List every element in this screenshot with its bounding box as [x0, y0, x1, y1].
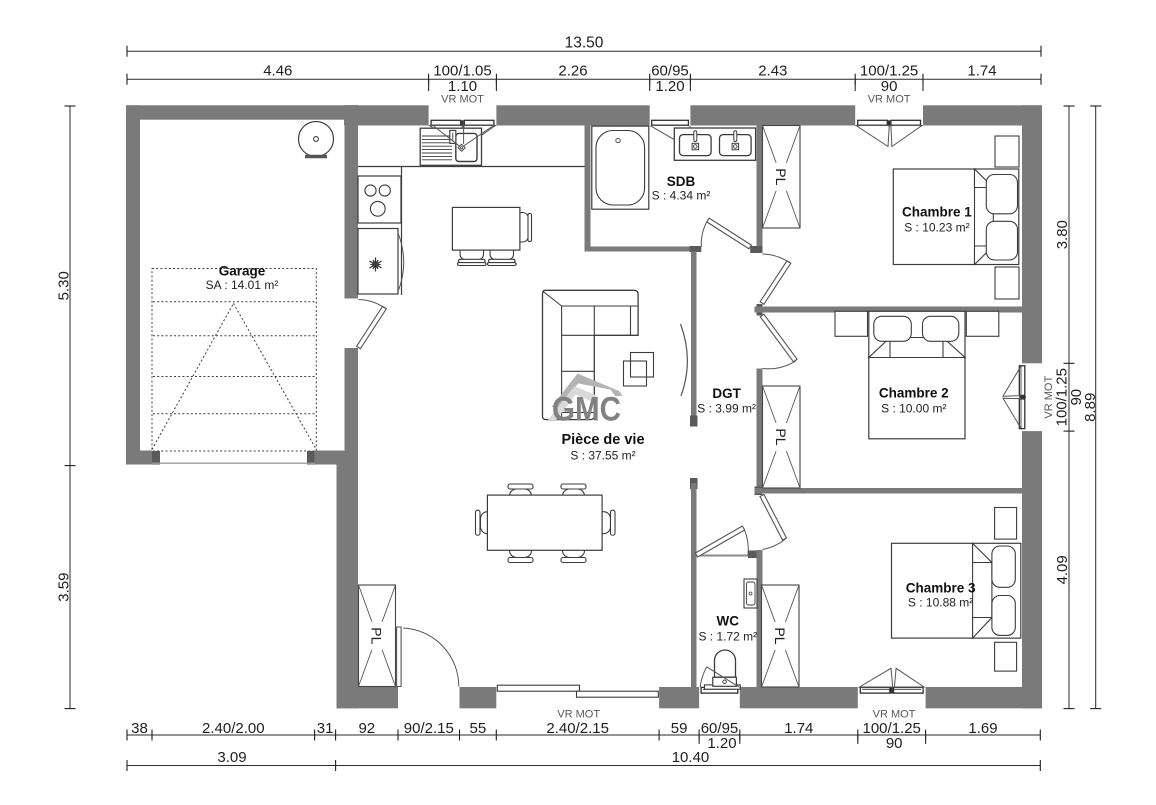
svg-text:55: 55 — [470, 720, 487, 737]
svg-text:PL: PL — [772, 627, 788, 644]
svg-text:VR MOT: VR MOT — [873, 709, 916, 721]
svg-text:1.74: 1.74 — [784, 720, 813, 737]
svg-text:4.09: 4.09 — [1054, 555, 1071, 584]
svg-text:SA : 14.01 m²: SA : 14.01 m² — [206, 278, 279, 292]
svg-text:3.59: 3.59 — [56, 572, 73, 601]
svg-text:90: 90 — [886, 735, 903, 752]
svg-text:90/2.15: 90/2.15 — [404, 720, 454, 737]
svg-text:Garage: Garage — [219, 264, 266, 279]
svg-text:13.50: 13.50 — [565, 35, 604, 52]
svg-text:S : 1.72 m²: S : 1.72 m² — [698, 629, 757, 643]
svg-text:60/95: 60/95 — [651, 63, 689, 80]
svg-text:DGT: DGT — [712, 386, 741, 401]
svg-text:2.43: 2.43 — [758, 63, 787, 80]
svg-text:38: 38 — [131, 720, 148, 737]
svg-text:4.46: 4.46 — [263, 63, 292, 80]
svg-text:2.40/2.15: 2.40/2.15 — [546, 720, 609, 737]
svg-text:GMC: GMC — [552, 391, 621, 429]
svg-text:S : 3.99 m²: S : 3.99 m² — [697, 401, 756, 415]
svg-text:3.09: 3.09 — [217, 749, 246, 766]
svg-text:SDB: SDB — [667, 174, 696, 189]
svg-text:VR MOT: VR MOT — [1043, 376, 1055, 419]
svg-text:Pièce de vie: Pièce de vie — [561, 432, 644, 448]
svg-text:VR MOT: VR MOT — [557, 709, 600, 721]
svg-text:S : 10.00 m²: S : 10.00 m² — [881, 402, 946, 416]
svg-text:S : 37.55 m²: S : 37.55 m² — [570, 448, 635, 462]
svg-text:1.69: 1.69 — [968, 720, 997, 737]
svg-text:S : 10.23 m²: S : 10.23 m² — [904, 220, 969, 234]
svg-text:5.30: 5.30 — [56, 271, 73, 300]
svg-text:2.40/2.00: 2.40/2.00 — [202, 720, 265, 737]
svg-text:PL: PL — [773, 168, 789, 185]
svg-text:S : 4.34 m²: S : 4.34 m² — [652, 189, 711, 203]
svg-text:90: 90 — [881, 78, 898, 95]
svg-text:92: 92 — [358, 720, 375, 737]
svg-text:Chambre 3: Chambre 3 — [906, 581, 976, 596]
svg-text:1.20: 1.20 — [655, 78, 684, 95]
svg-text:1.20: 1.20 — [707, 735, 736, 752]
svg-text:10.40: 10.40 — [672, 749, 710, 766]
svg-text:8.89: 8.89 — [1082, 393, 1099, 422]
svg-text:31: 31 — [317, 720, 334, 737]
svg-text:WC: WC — [717, 613, 740, 628]
svg-text:3.80: 3.80 — [1054, 220, 1071, 249]
svg-text:100/1.05: 100/1.05 — [433, 63, 491, 80]
svg-text:59: 59 — [671, 720, 688, 737]
svg-text:VR MOT: VR MOT — [868, 94, 911, 106]
svg-text:PL: PL — [773, 428, 789, 445]
svg-text:100/1.25: 100/1.25 — [860, 63, 918, 80]
svg-text:2.26: 2.26 — [558, 63, 587, 80]
svg-text:Chambre 1: Chambre 1 — [902, 204, 972, 219]
svg-text:1.10: 1.10 — [448, 78, 477, 95]
svg-text:S : 10.88 m²: S : 10.88 m² — [908, 595, 973, 609]
svg-text:Chambre 2: Chambre 2 — [879, 386, 949, 401]
svg-text:VR MOT: VR MOT — [441, 94, 484, 106]
svg-text:PL: PL — [369, 627, 385, 644]
svg-text:1.74: 1.74 — [967, 63, 996, 80]
